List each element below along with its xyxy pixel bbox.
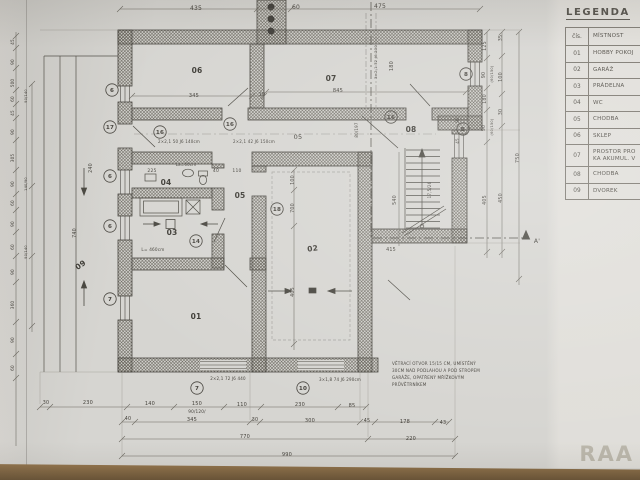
legend-room-name: PRÁDELNA (589, 79, 624, 95)
wall-garage-right (358, 152, 372, 372)
dim-label: 220 (406, 436, 416, 442)
dim-label: 750 (515, 153, 521, 163)
note-line: GARÁŽE, OPATŘENÝ MŘÍŽKOVÝM (392, 375, 464, 380)
dim-label: 90 (10, 59, 15, 65)
legend-row-05: 05 CHODBA (566, 112, 640, 129)
grid-bubble-label: 7 (108, 297, 112, 303)
dim-label: 180 (482, 94, 488, 104)
raa-watermark: RAA (579, 442, 634, 466)
dim-label: 17,5/26 (427, 181, 432, 198)
dim-label: 140 (145, 401, 155, 407)
legend-room-number: 07 (566, 145, 589, 166)
legend-room-number: 01 (566, 46, 589, 62)
dim-label: 110 (232, 168, 241, 174)
legend-room-number: 08 (566, 167, 589, 183)
legend-room-name: CHODBA (589, 112, 619, 128)
room-label-07: 07 (326, 74, 337, 83)
dim-label: 45 (10, 110, 15, 116)
dim-label: 300 (305, 418, 315, 424)
dim-label: 30 (498, 109, 504, 116)
wall-corridor-leg (212, 164, 224, 168)
dim-label: 500 (10, 79, 15, 88)
dim-label: 110 (237, 402, 247, 408)
dim-label: 540 (392, 195, 398, 205)
legend-room-name: PROSTOR PRO KA AKUMUL. V (589, 145, 636, 166)
legend-room-number: 02 (566, 63, 589, 79)
yard-lines (44, 56, 118, 372)
dim-label: 35 (498, 35, 504, 42)
wall-left (118, 30, 132, 86)
dim-label: 770 (240, 434, 250, 440)
legend-row-07: 07 PROSTOR PRO KA AKUMUL. V (566, 145, 640, 167)
legend-room-number: 04 (566, 96, 589, 112)
wall-top (118, 30, 482, 44)
dim-label: 178 (400, 419, 410, 425)
legend-row-09: 09 DVOREK (566, 184, 640, 201)
dim-label: 30 (252, 417, 259, 423)
legend-row-04: 04 WC (566, 96, 640, 113)
wall-04-03 (132, 188, 212, 198)
dim-label: 360 (10, 301, 15, 310)
legend-panel: LEGENDA čís. MÍSTNOST 01 HOBBY POKOJ 02 … (552, 0, 640, 20)
staircase (402, 148, 446, 236)
dim-label: 45 (364, 418, 371, 424)
dim-label: 45 (455, 138, 460, 144)
room-label-05: 05 (235, 191, 246, 200)
dim-label: 30 (43, 400, 50, 406)
legend-room-number: 06 (566, 129, 589, 145)
wall-garage-top (252, 152, 372, 166)
legend-room-number: 09 (566, 184, 589, 200)
room-label-04: 04 (161, 178, 172, 187)
cistern (145, 174, 156, 181)
grid-bubble-label: 16 (156, 130, 164, 136)
dim-label: 100 (498, 72, 504, 82)
wall-garage-left (252, 166, 266, 172)
dim-label: 90 (10, 269, 15, 275)
dim-label: 700 (290, 203, 296, 213)
dim-label: 3×2,1 72 J6 230 (373, 45, 378, 79)
dim-label: 90/140 (24, 245, 28, 259)
dim-label: 40 (213, 168, 219, 174)
dim-label: 60 (10, 200, 15, 206)
wall-corridor-top (248, 108, 406, 120)
wall-corridor-leg (212, 188, 224, 210)
legend-header-row: čís. MÍSTNOST (566, 28, 640, 46)
floor-plan-drawing: 43560475345108451803×2,1 72 J6 2302×2,1 … (0, 0, 640, 480)
dim-label: 10 (259, 92, 266, 98)
dim-label: 845 (333, 88, 343, 94)
note-line: 30CM NAD PODLAHOU A POD STROPEM (392, 368, 480, 373)
room-label-02: 02 (307, 243, 319, 253)
dim-label: 180 (389, 61, 395, 71)
legend-row-03: 03 PRÁDELNA (566, 79, 640, 96)
dim-label: 2×2,1 50 J6 140cm (158, 139, 200, 144)
dim-label: 60 (10, 244, 15, 250)
laundry-tub-inner (144, 201, 179, 213)
wall-corridor-top (132, 108, 222, 120)
dim-label: 90 (481, 125, 487, 132)
legend-row-08: 08 CHODBA (566, 167, 640, 184)
grid-bubble-label: 17 (106, 125, 114, 131)
dim-label: 85 (349, 403, 356, 409)
room-label-08: 08 (406, 125, 417, 134)
grid-bubble-label: 18 (273, 207, 281, 213)
legend-row-06: 06 SKLEP (566, 129, 640, 146)
wall-03-01 (132, 258, 224, 270)
legend-room-name: CHODBA (589, 167, 619, 183)
dim-label: 40 (125, 416, 132, 422)
room-label-03: 03 (167, 228, 178, 237)
dim-label: 90 (10, 129, 15, 135)
grid-bubble-label: 10 (299, 386, 307, 392)
dim-label: 3×1,8 74 J6 290cm (319, 377, 361, 382)
dim-label: 230 (295, 402, 305, 408)
dim-label: 740 (72, 228, 78, 238)
dim-label: 2×2,1 42 J6 150cm (233, 139, 275, 144)
toilet (199, 175, 206, 184)
dim-label: 345 (187, 417, 197, 423)
grid-bubble-label: 8 (464, 72, 468, 78)
dim-label: 60 (292, 4, 300, 11)
dim-label: 2×2,1 72 J6 440 (210, 376, 246, 381)
section-arrow (523, 231, 530, 239)
dim-label: 90/120/ (188, 409, 206, 414)
dim-label: 90 (10, 221, 15, 227)
wall-below-stair (372, 229, 467, 243)
dim-label: 43 (440, 420, 447, 426)
legend-room-number: 03 (566, 79, 589, 95)
dim-label: 435 (190, 5, 202, 12)
legend-row-01: 01 HOBBY POKOJ (566, 46, 640, 63)
dim-label: 405 (482, 195, 488, 205)
grid-bubble-label: 6 (110, 88, 114, 94)
dim-label: L= 460cm (141, 247, 164, 252)
legend-room-name: WC (589, 96, 603, 112)
legend-room-name: SKLEP (589, 129, 611, 145)
dim-label: 150 (192, 401, 202, 407)
dim-label: 450 (498, 193, 504, 203)
dim-label: 990 (282, 452, 292, 458)
grid-bubble-label: 7 (195, 386, 199, 392)
legend-row-02: 02 GARÁŽ (566, 63, 640, 80)
legend-room-name: GARÁŽ (589, 63, 613, 79)
legend-col-room: MÍSTNOST (589, 28, 624, 45)
legend-title: LEGENDA (566, 7, 630, 20)
yard-arrow-up (81, 281, 86, 288)
garage-bay-outline (272, 172, 350, 340)
note-line: VĚTRACÍ OTVOR 15/15 CM, UMÍSTĚNÝ (392, 361, 476, 366)
flue-circle (268, 28, 274, 34)
wall-left (118, 240, 132, 296)
dim-label: 125 (482, 41, 488, 51)
room-label-05-alt: 05 (294, 133, 303, 141)
dim-label: 405 (290, 287, 296, 297)
washbasin (183, 169, 194, 177)
legend-col-number: čís. (566, 28, 589, 45)
flue-circle (268, 16, 274, 22)
dim-label: 80/197 (354, 122, 359, 138)
wall-garage-left (252, 196, 266, 372)
dim-label: 415 (386, 247, 396, 253)
wall-left (118, 102, 132, 124)
dim-label: 225 (147, 168, 156, 174)
dim-label: 90 (10, 337, 15, 343)
dim-label: 230 (83, 400, 93, 406)
dim-label: 90/140 (24, 89, 28, 103)
legend-room-number: 05 (566, 112, 589, 128)
grid-bubble-label: B (461, 127, 465, 133)
room-label-01: 01 (191, 312, 202, 321)
dim-label: 100 (290, 175, 296, 185)
wall-corridor-top (432, 108, 468, 120)
floorplan-photo: 43560475345108451803×2,1 72 J6 2302×2,1 … (0, 0, 640, 480)
yard-arrow-down (81, 188, 86, 195)
dim-label: 90 (10, 181, 15, 187)
grid-bubble-label: 6 (108, 224, 112, 230)
legend-room-name: DVOREK (589, 184, 618, 200)
dim-label: 475 (374, 3, 386, 10)
wall-right (468, 30, 482, 62)
grid-bubble-label: 16 (387, 115, 395, 121)
grid-bubble-label: 6 (108, 174, 112, 180)
room-label-06: 06 (192, 66, 203, 75)
dim-label: (60/150) (490, 65, 494, 82)
chimney-flues (268, 4, 274, 34)
dim-label: 45 (10, 39, 15, 45)
garage-drain (309, 288, 316, 293)
dim-label: 60 (10, 365, 15, 371)
legend-room-name: HOBBY POKOJ (589, 46, 634, 62)
note-line: PRŮVĚTRNÍKEM (392, 382, 427, 387)
section-label: A' (534, 238, 540, 245)
dim-label: 240 (88, 163, 94, 173)
dim-label: (60/150) (490, 118, 494, 135)
dim-label: 305 (10, 154, 15, 163)
wall-corridor-bottom (132, 152, 212, 164)
dim-label: 90 (481, 72, 487, 79)
wall-left (118, 148, 132, 170)
wall-left (118, 194, 132, 216)
dim-label: 90 (455, 117, 460, 123)
grid-bubble-label: 14 (192, 239, 200, 245)
grid-bubble-label: 16 (226, 122, 234, 128)
dim-label: 345 (189, 93, 199, 99)
dim-label: La=60cm (176, 162, 197, 167)
dim-label: 60 (10, 96, 15, 102)
legend-table: čís. MÍSTNOST 01 HOBBY POKOJ 02 GARÁŽ 03… (565, 27, 640, 200)
dim-label: 140/90 (24, 177, 28, 191)
